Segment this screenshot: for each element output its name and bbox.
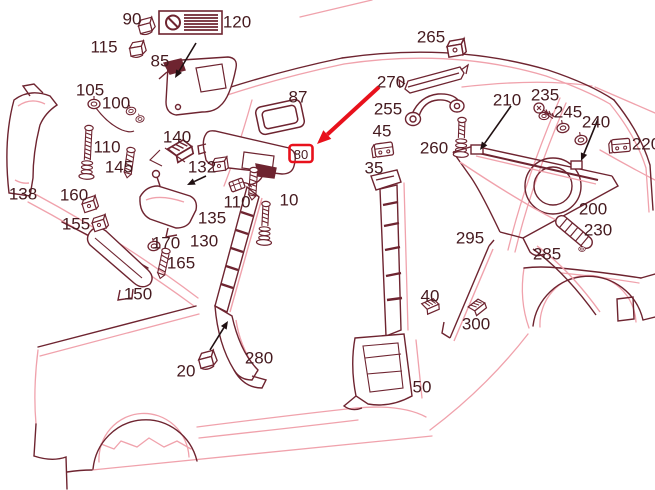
part-label-240: 240: [582, 113, 610, 132]
part-label-300: 300: [462, 315, 490, 334]
part-label-130: 130: [190, 232, 218, 251]
bracket-part-icon: [371, 142, 394, 158]
prohibition-plate-120: [159, 11, 222, 34]
part-label-295: 295: [456, 229, 484, 248]
b-pillar-trim-35: [371, 170, 402, 336]
part-label-105: 105: [76, 81, 104, 100]
a-pillar-trim-138: [7, 84, 57, 196]
grommet-part-icon: [134, 113, 144, 124]
part-label-165: 165: [167, 254, 195, 273]
part-label-120: 120: [223, 13, 251, 32]
clip-part-icon: [197, 350, 218, 371]
clip-part-icon: [129, 41, 147, 59]
part-label-20: 20: [177, 362, 196, 381]
grab-handle-rail-270: [399, 65, 468, 93]
arrow-head: [581, 152, 587, 161]
part-label-140: 140: [163, 128, 191, 147]
nut-part-icon: [579, 247, 586, 252]
part-label-155: 155: [62, 215, 90, 234]
part-label-87: 87: [289, 88, 308, 107]
part-label-265: 265: [417, 28, 445, 47]
part-label-90: 90: [123, 10, 142, 29]
part-label-85: 85: [151, 52, 170, 71]
parts-diagram-page: 9012011585105100110140145132135130871381…: [0, 0, 655, 490]
part-label-115: 115: [90, 38, 117, 57]
part-label-110: 110: [93, 138, 120, 157]
grab-handle-255: [406, 94, 465, 126]
part-label-138: 138: [9, 185, 37, 204]
cube-part-icon: [91, 215, 109, 232]
part-label-200: 200: [579, 200, 607, 219]
part-label-220: 220: [632, 135, 655, 154]
part-label-230: 230: [584, 221, 612, 240]
grommet-part-icon: [574, 131, 588, 145]
arrow-line: [485, 106, 511, 143]
part-label-145: 145: [105, 158, 133, 177]
part-label-280: 280: [245, 349, 273, 368]
exploded-parts-diagram: 9012011585105100110140145132135130871381…: [0, 0, 655, 490]
part-label-150: 150: [124, 285, 152, 304]
part-label-110: 110: [223, 193, 250, 212]
part-label-270: 270: [377, 73, 405, 92]
part-label-160: 160: [60, 186, 88, 205]
part-label-132: 132: [188, 158, 216, 177]
part-label-285: 285: [533, 245, 561, 264]
part-label-260: 260: [420, 139, 448, 158]
part-label-245: 245: [554, 103, 582, 122]
cube-part-icon: [446, 39, 466, 57]
car-body-pink-lines: [28, 0, 655, 470]
arrow-line: [194, 176, 206, 182]
bracket-part-icon: [608, 138, 630, 153]
part-label-50: 50: [413, 378, 432, 397]
sun-visor-85: [159, 57, 236, 115]
part-label-40: 40: [421, 287, 440, 306]
rearview-mirror-130: [140, 171, 196, 238]
b-pillar-lower-trim-50: [344, 334, 412, 410]
part-label-170: 170: [152, 234, 180, 253]
red-arrow: [317, 87, 379, 144]
part-label-210: 210: [493, 91, 521, 110]
coilscrew-part-icon: [453, 117, 469, 157]
part-label-45: 45: [373, 122, 392, 141]
part-label-135: 135: [198, 209, 226, 228]
part-label-255: 255: [374, 100, 402, 119]
part-label-100: 100: [102, 94, 130, 113]
arrow-line: [327, 87, 379, 135]
part-label-10: 10: [280, 191, 299, 210]
part-label-35: 35: [365, 159, 384, 178]
highlighted-part-number: 80: [294, 147, 308, 162]
